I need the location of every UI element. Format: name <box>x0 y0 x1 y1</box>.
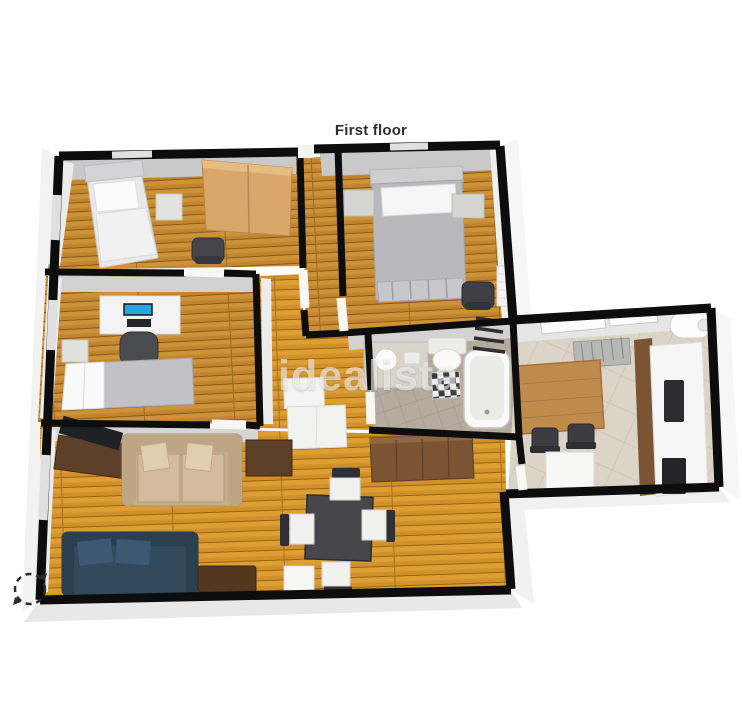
wall-hall-step <box>304 310 306 336</box>
double-bed <box>370 166 466 302</box>
white-side-table <box>284 566 314 592</box>
wall-bedroom1-office <box>45 272 184 273</box>
nightstand-right <box>452 194 484 218</box>
door-bedroom2 <box>341 298 344 331</box>
long-sideboard <box>370 434 474 482</box>
nightstand <box>62 340 88 362</box>
floor-label: First floor <box>0 122 742 139</box>
hall-closet-small <box>283 377 324 408</box>
entry-gap <box>298 145 313 158</box>
monitor <box>124 304 152 315</box>
teal-sofa <box>62 532 198 596</box>
nightstand <box>156 194 182 220</box>
floorplan-image: First floor idealista <box>0 0 742 719</box>
door-bedroom1 <box>186 272 224 273</box>
wall-top-bedroom1 <box>59 152 298 156</box>
window-left-office <box>51 300 53 350</box>
door-upper-hall <box>303 270 305 308</box>
keyboard <box>127 319 151 327</box>
wall-bathroom-left <box>368 334 371 390</box>
sofa-cushion <box>115 539 151 565</box>
floorplan-render <box>0 0 742 719</box>
wall-kitchen-stub <box>519 437 522 464</box>
dining-chair <box>280 514 314 546</box>
desk <box>100 296 180 334</box>
beige-sofa <box>122 434 242 506</box>
kitchen-chair <box>530 428 560 453</box>
nightstand-left <box>344 190 374 216</box>
bedroom-chair <box>462 282 494 310</box>
wall-office-living <box>41 423 210 425</box>
desk-chair <box>192 238 224 264</box>
door-bathroom <box>370 392 371 424</box>
window-top-bedroom1 <box>112 154 152 155</box>
wall-bedroom1-office-2 <box>224 273 256 274</box>
window-left-bedroom1 <box>55 195 57 240</box>
water-heater <box>670 312 712 338</box>
wall-bedroom2-bottom-step <box>306 333 344 335</box>
door-living <box>212 424 246 425</box>
bath-mat <box>431 371 461 399</box>
dining-chair <box>330 468 360 500</box>
window-top-bedroom2 <box>390 146 428 147</box>
throw-pillow <box>185 443 214 472</box>
sofa-cushion <box>77 538 113 565</box>
wall-bedroom1-hall <box>300 156 303 268</box>
wood-cabinet <box>246 440 292 476</box>
kitchen-table <box>518 360 604 434</box>
wall-office-hall <box>256 274 260 426</box>
window-left-living <box>43 455 46 520</box>
coffee-table <box>198 566 256 592</box>
bathtub <box>464 350 510 428</box>
wall-office-living-2 <box>246 425 260 426</box>
kitchen-counter <box>650 342 708 496</box>
oven <box>664 380 684 422</box>
throw-pillow <box>140 442 169 471</box>
office-single-bed <box>62 358 194 410</box>
dining-chair <box>362 510 395 542</box>
wall-bedroom2-left <box>338 149 343 296</box>
kitchen-chair <box>566 424 596 449</box>
door-kitchen <box>520 466 523 490</box>
wardrobe <box>202 160 292 236</box>
